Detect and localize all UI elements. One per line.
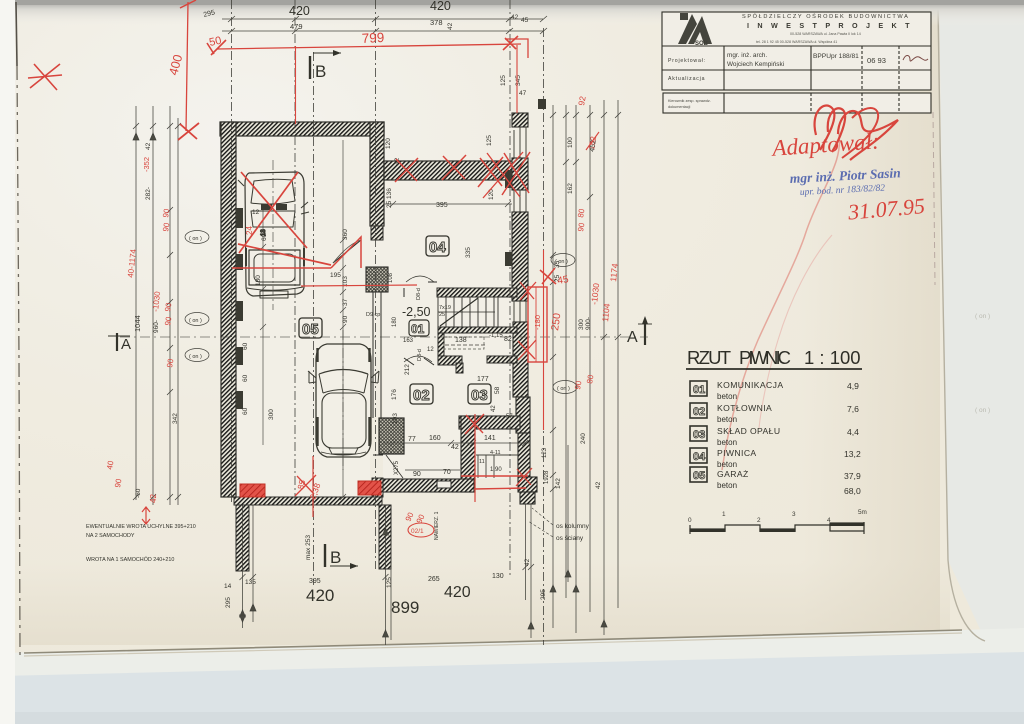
svg-text:58: 58 [494,386,501,394]
svg-text:D9 cp: D9 cp [366,312,380,318]
svg-text:03: 03 [693,429,705,441]
svg-text:Kierownik zesp. sprawdz.: Kierownik zesp. sprawdz. [668,99,711,103]
svg-text:300: 300 [268,409,275,420]
svg-text:KOMUNIKACJA: KOMUNIKACJA [717,380,783,390]
svg-text:108: 108 [388,272,394,283]
svg-text:D8-d: D8-d [416,288,422,300]
svg-text:4,9: 4,9 [847,381,859,391]
svg-text:GARAŻ: GARAŻ [717,469,749,479]
svg-text:EWENTUALNIE WROTA UCHYLNE 39: EWENTUALNIE WROTA UCHYLNE 395+210 [86,524,196,530]
svg-text:beton: beton [717,481,737,490]
svg-text:420: 420 [306,586,334,605]
svg-text:360: 360 [342,229,349,240]
svg-text:( on ): ( on ) [557,386,570,392]
svg-text:162: 162 [567,183,574,194]
svg-text:1928: 1928 [544,470,550,484]
svg-text:120: 120 [385,138,392,149]
svg-text:899: 899 [391,598,419,617]
svg-text:395: 395 [309,578,321,585]
svg-text:378: 378 [430,18,443,27]
svg-text:Wojciech Kempiński: Wojciech Kempiński [727,61,784,68]
svg-text:77: 77 [408,436,416,443]
svg-text:176: 176 [391,389,398,400]
svg-text:05: 05 [693,470,705,482]
svg-text:212: 212 [404,364,411,375]
svg-text:BPPUpr 188/81: BPPUpr 188/81 [813,53,859,60]
svg-text:42: 42 [145,142,152,150]
svg-text:42: 42 [491,405,497,412]
svg-text:60: 60 [242,374,249,382]
svg-text:180: 180 [255,275,262,286]
svg-text:68,0: 68,0 [844,486,861,496]
svg-text:250: 250 [549,312,563,331]
svg-text:420: 420 [444,584,471,601]
svg-text:42: 42 [451,444,459,451]
svg-text:SPÓŁDZIELCZY OŚRODEK BUDOWNICT: SPÓŁDZIELCZY OŚRODEK BUDOWNICTWA [742,12,909,20]
svg-text:90: 90 [342,315,349,323]
svg-text:NA 2 SAMOCHODY: NA 2 SAMOCHODY [86,533,135,539]
svg-text:( on ): ( on ) [975,313,990,320]
svg-text:42: 42 [149,494,158,503]
svg-text:60: 60 [242,342,249,350]
svg-text:beton: beton [717,415,737,424]
svg-text:42: 42 [595,481,602,489]
svg-text:3: 3 [792,511,796,518]
svg-text:1104: 1104 [600,303,612,322]
svg-text:01: 01 [411,322,425,336]
svg-text:1,90: 1,90 [490,467,502,473]
svg-text:beton: beton [717,438,737,447]
svg-text:142: 142 [555,478,562,489]
svg-text:-60: -60 [135,488,142,498]
svg-text:0: 0 [688,517,692,524]
svg-text:1 : 100: 1 : 100 [804,347,861,368]
svg-text:282-: 282- [145,187,152,200]
svg-text:420: 420 [430,0,451,13]
svg-text:I N W E S T P R O J E K T: I N W E S T P R O J E K T [747,21,913,30]
svg-text:7,6: 7,6 [847,404,859,414]
svg-text:141: 141 [484,435,496,442]
svg-text:42: 42 [447,22,454,30]
svg-text:13,2: 13,2 [844,449,861,459]
svg-text:( on ): ( on ) [189,318,202,324]
svg-text:A: A [121,336,131,353]
svg-text:125: 125 [500,75,507,86]
svg-text:295: 295 [225,597,232,608]
svg-text:4: 4 [827,517,831,524]
svg-text:47: 47 [519,90,527,97]
svg-text:5m: 5m [858,509,867,516]
svg-text:-1,15: -1,15 [489,333,503,339]
svg-text:04: 04 [693,451,706,463]
svg-text:B: B [330,548,341,567]
svg-text:177: 177 [477,376,489,383]
svg-text:123: 123 [542,447,548,458]
svg-text:SKŁAD OPAŁU: SKŁAD OPAŁU [717,426,780,436]
svg-text:300: 300 [578,319,585,330]
svg-text:4-11: 4-11 [490,450,501,456]
svg-text:12: 12 [252,209,260,216]
svg-text:345: 345 [515,75,522,86]
svg-text:60: 60 [261,233,268,241]
svg-text:PIWNICA: PIWNICA [717,448,757,458]
svg-text:12: 12 [427,347,434,353]
svg-text:os kolumny: os kolumny [556,523,590,530]
svg-text:beton: beton [717,392,737,401]
svg-text:A: A [627,329,638,346]
svg-text:SOB: SOB [695,41,709,47]
svg-text:900-: 900- [585,317,592,330]
svg-text:7x19: 7x19 [439,305,451,311]
svg-text:160: 160 [429,435,441,442]
svg-text:70: 70 [443,469,451,476]
svg-text:( on ): ( on ) [189,236,202,242]
svg-text:138: 138 [455,337,467,344]
svg-text:60: 60 [242,407,249,415]
svg-text:265: 265 [428,576,440,583]
svg-text:( on ): ( on ) [189,354,202,360]
svg-text:25 136: 25 136 [386,188,393,208]
svg-text:37,9: 37,9 [844,471,861,481]
svg-text:Aktualizacja: Aktualizacja [668,76,705,82]
svg-text:00-528 WARSZAWA ul. Jana Pawła: 00-528 WARSZAWA ul. Jana Pawła II lok 14 [790,32,861,36]
svg-text:57: 57 [506,414,513,420]
svg-text:92: 92 [576,95,588,106]
svg-text:KOTŁOWNIA: KOTŁOWNIA [717,403,772,413]
svg-text:50: 50 [208,35,222,49]
svg-text:01: 01 [693,384,705,396]
svg-text:tel. 28 1 92 45 00-528 WARSZ: tel. 28 1 92 45 00-528 WARSZAWA ul. Wspó… [756,40,837,44]
svg-text:14: 14 [224,583,232,590]
svg-text:1: 1 [722,511,726,518]
svg-text:dokumentacji: dokumentacji [668,105,691,109]
svg-text:37: 37 [342,298,349,306]
svg-text:799: 799 [361,30,384,46]
svg-text:RZUT: RZUT [687,347,731,368]
svg-text:960-: 960- [153,320,160,333]
svg-text:195: 195 [330,272,341,279]
svg-text:03: 03 [471,387,488,404]
svg-text:X275: X275 [394,460,400,475]
svg-text:163: 163 [403,338,414,344]
svg-text:2: 2 [757,517,761,524]
svg-text:125: 125 [386,577,393,588]
svg-text:420: 420 [289,4,310,18]
svg-text:395: 395 [436,202,448,209]
svg-text:100: 100 [567,137,574,148]
svg-text:NAWIERZ. 1: NAWIERZ. 1 [434,511,440,540]
svg-text:24: 24 [245,226,254,235]
svg-text:02/1: 02/1 [411,528,424,535]
svg-text:45: 45 [521,17,529,24]
svg-text:25: 25 [439,312,445,318]
svg-text:125: 125 [486,135,493,146]
svg-text:103: 103 [392,413,399,424]
svg-text:-180: -180 [533,315,542,330]
svg-text:1044: 1044 [133,315,142,332]
svg-text:06 93: 06 93 [867,56,886,65]
svg-text:342: 342 [172,413,179,424]
svg-text:335: 335 [465,247,472,258]
svg-text:Projektował:: Projektował: [668,58,706,64]
svg-text:4,4: 4,4 [847,427,859,437]
svg-text:mgr. inż. arch.: mgr. inż. arch. [727,52,767,59]
svg-text:1174: 1174 [608,263,620,282]
svg-text:WROTA NA 1 SAMOCHÓD 240+210: WROTA NA 1 SAMOCHÓD 240+210 [86,556,174,563]
svg-text:( on ): ( on ) [555,259,568,265]
svg-text:-352: -352 [142,157,151,172]
svg-text:beton: beton [717,460,737,469]
svg-text:B: B [315,62,326,81]
svg-text:42: 42 [511,14,519,21]
svg-text:04: 04 [429,239,446,256]
svg-text:05: 05 [302,321,319,338]
svg-text:-2,50: -2,50 [402,305,431,319]
svg-text:240: 240 [580,433,587,444]
svg-text:479: 479 [290,22,303,31]
svg-text:42: 42 [524,558,531,566]
svg-text:PIWNIC: PIWNIC [739,347,791,368]
svg-text:11: 11 [479,459,485,465]
svg-text:D8-d: D8-d [417,349,423,361]
svg-text:135: 135 [245,579,256,586]
svg-text:max 253: max 253 [305,535,312,560]
svg-text:180: 180 [392,316,398,327]
svg-text:os ściany: os ściany [556,535,584,542]
svg-text:130: 130 [492,573,504,580]
svg-text:02: 02 [413,387,430,404]
svg-text:02: 02 [693,406,705,418]
svg-text:( on ): ( on ) [975,407,990,414]
svg-text:90: 90 [413,471,421,478]
svg-text:295: 295 [540,589,547,600]
